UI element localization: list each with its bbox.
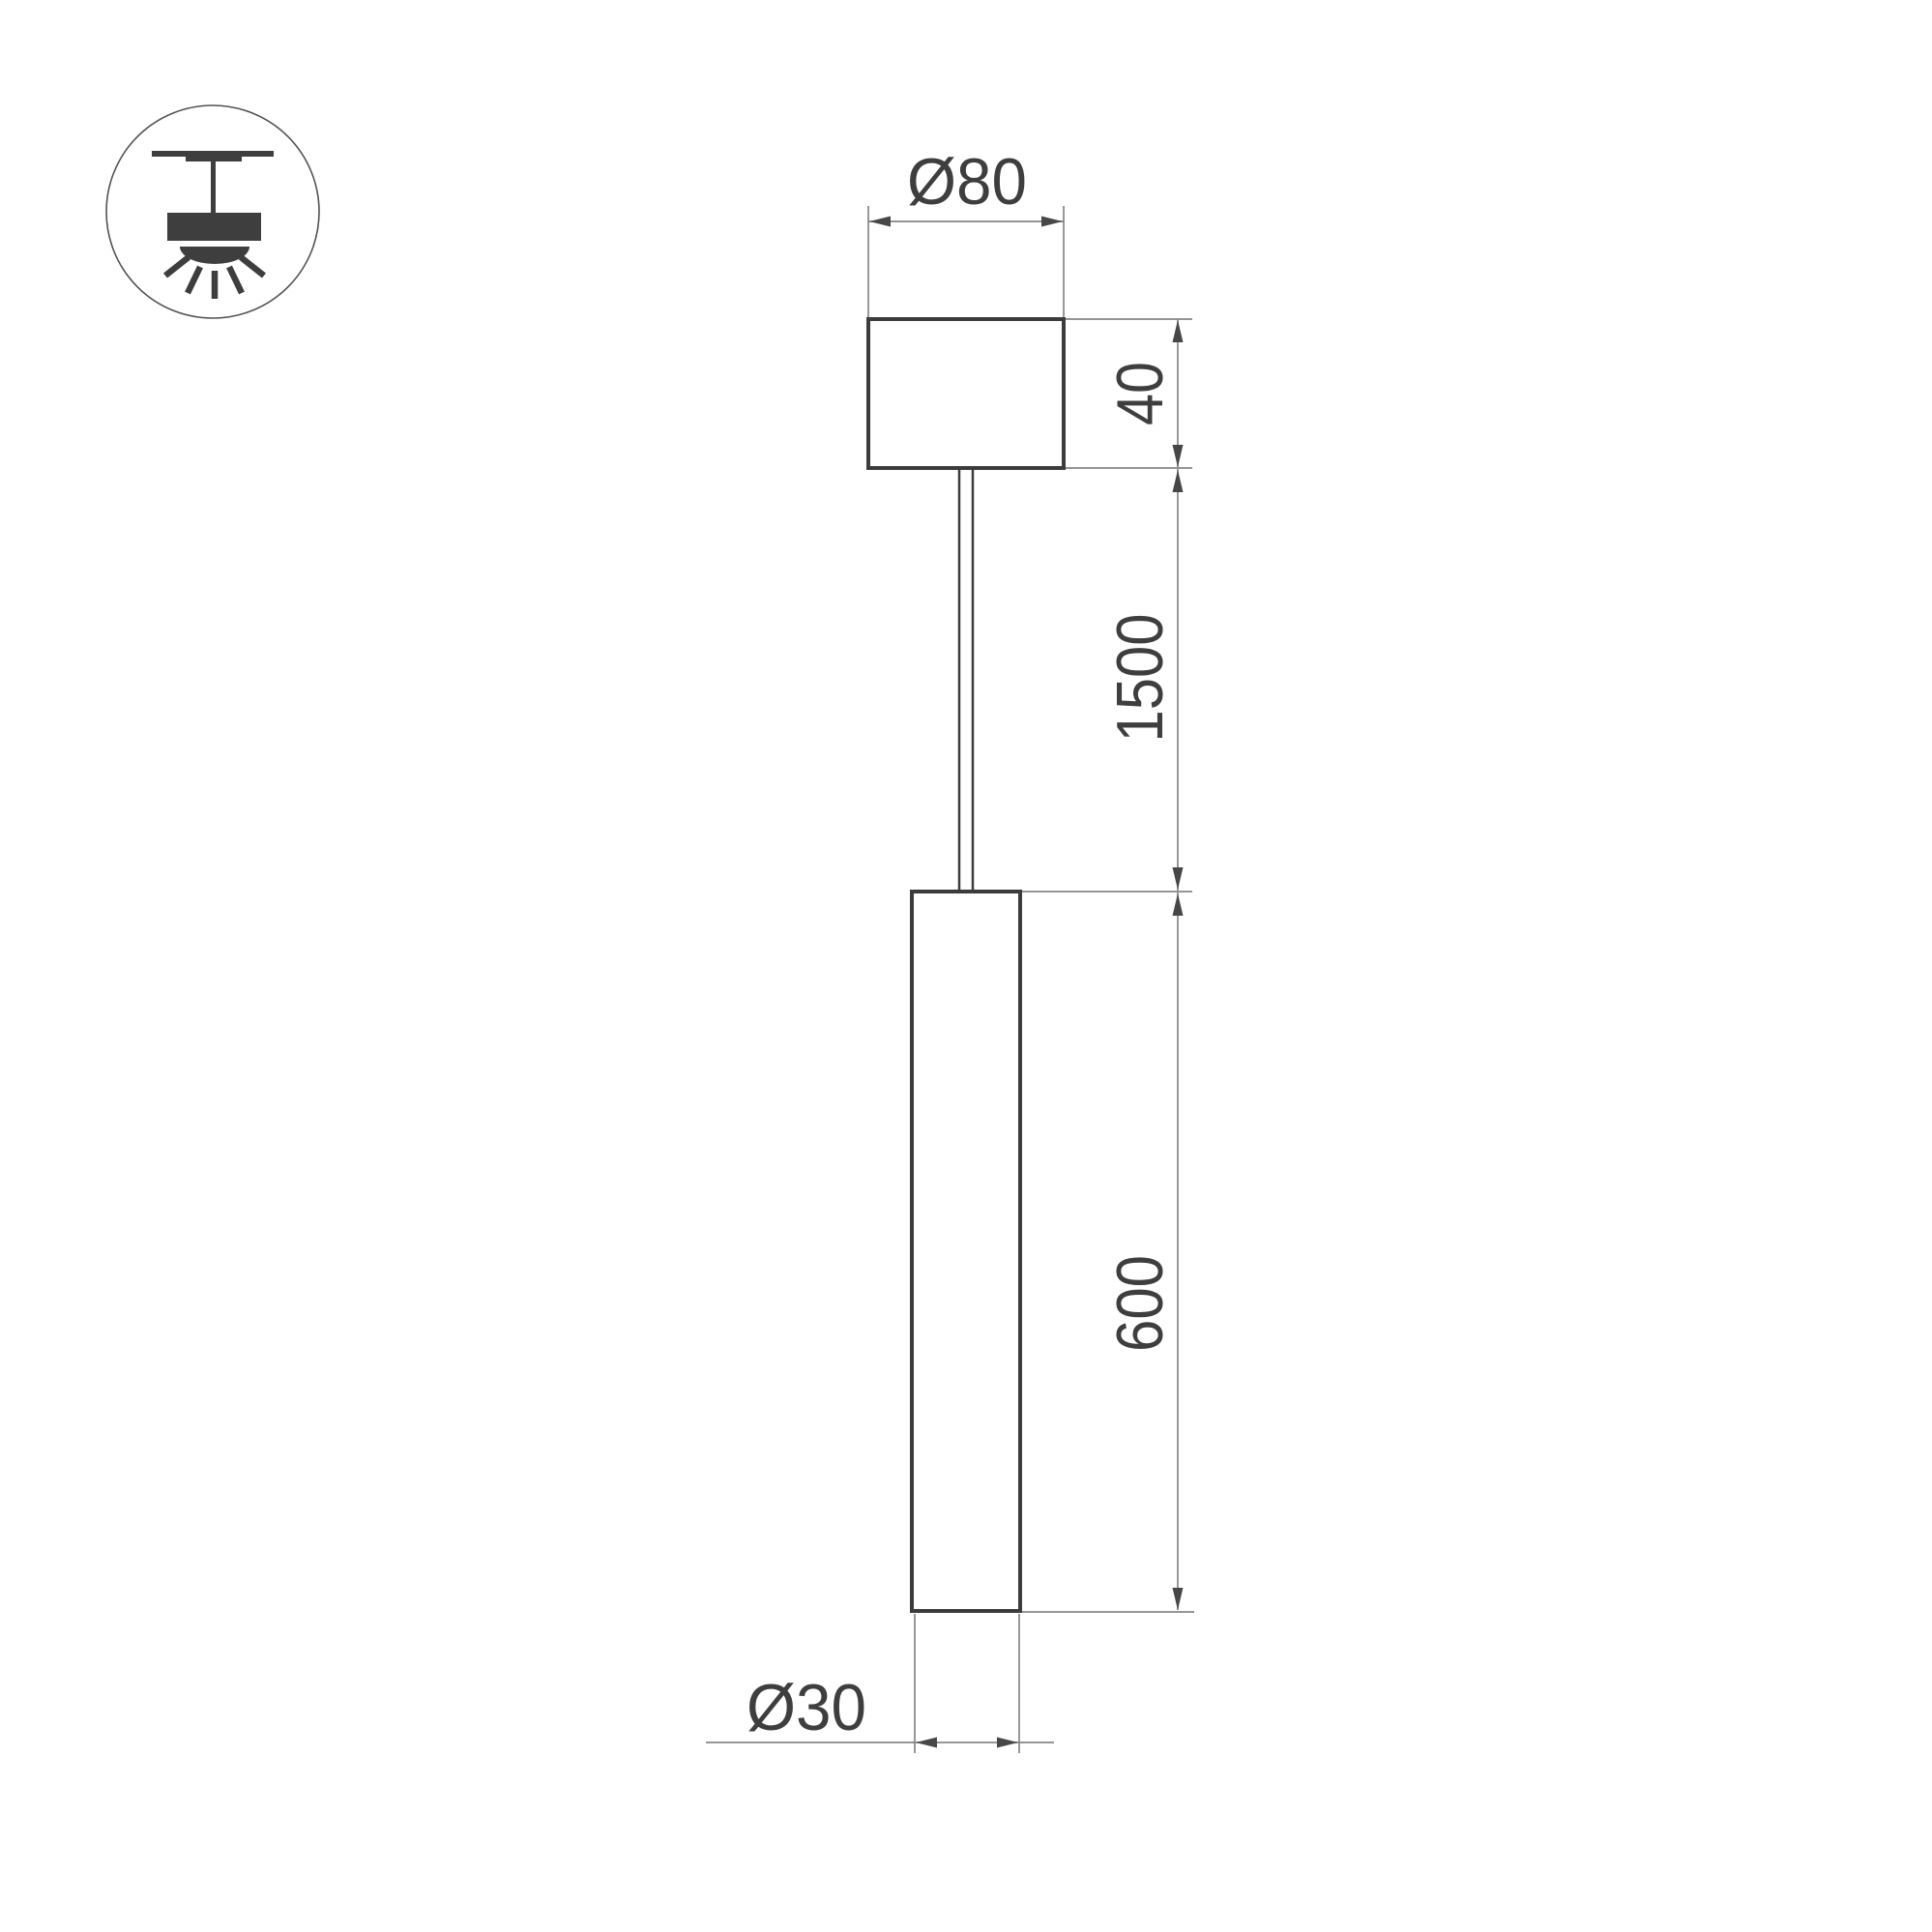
arrowhead-down bbox=[1173, 867, 1184, 890]
arrowhead-right bbox=[997, 1738, 1018, 1748]
arrowhead-left bbox=[916, 1738, 937, 1748]
arrowhead-up bbox=[1173, 470, 1184, 492]
arrowhead-up bbox=[1173, 893, 1184, 916]
technical-drawing-page: Ø80 40 1500 600 bbox=[0, 0, 1932, 1932]
dimension-canopy-diameter: Ø80 bbox=[868, 145, 1064, 317]
arrowhead-down bbox=[1173, 445, 1184, 467]
tube-diameter-label: Ø30 bbox=[746, 1671, 866, 1744]
arrowhead-down bbox=[1173, 1588, 1184, 1610]
canopy bbox=[868, 319, 1064, 468]
canopy-diameter-label: Ø80 bbox=[907, 145, 1027, 219]
dimension-suspension-length: 1500 bbox=[1022, 469, 1192, 892]
mounting-type-icon bbox=[106, 105, 319, 318]
arrowhead-up bbox=[1173, 320, 1184, 342]
arrowhead-right bbox=[1041, 217, 1063, 227]
dimension-tube-length: 600 bbox=[1022, 893, 1194, 1612]
lamp-tube bbox=[912, 892, 1020, 1611]
tube-length-label: 600 bbox=[1103, 1255, 1177, 1352]
dimension-canopy-height: 40 bbox=[1066, 319, 1192, 468]
drawing-svg: Ø80 40 1500 600 bbox=[0, 0, 1932, 1932]
icon-lamp-body bbox=[167, 213, 261, 241]
icon-stem bbox=[211, 160, 216, 215]
dimension-tube-diameter: Ø30 bbox=[706, 1614, 1054, 1753]
arrowhead-left bbox=[869, 217, 891, 227]
suspension-length-label: 1500 bbox=[1103, 614, 1177, 743]
canopy-height-label: 40 bbox=[1103, 362, 1177, 425]
luminaire-outline bbox=[868, 319, 1064, 1611]
